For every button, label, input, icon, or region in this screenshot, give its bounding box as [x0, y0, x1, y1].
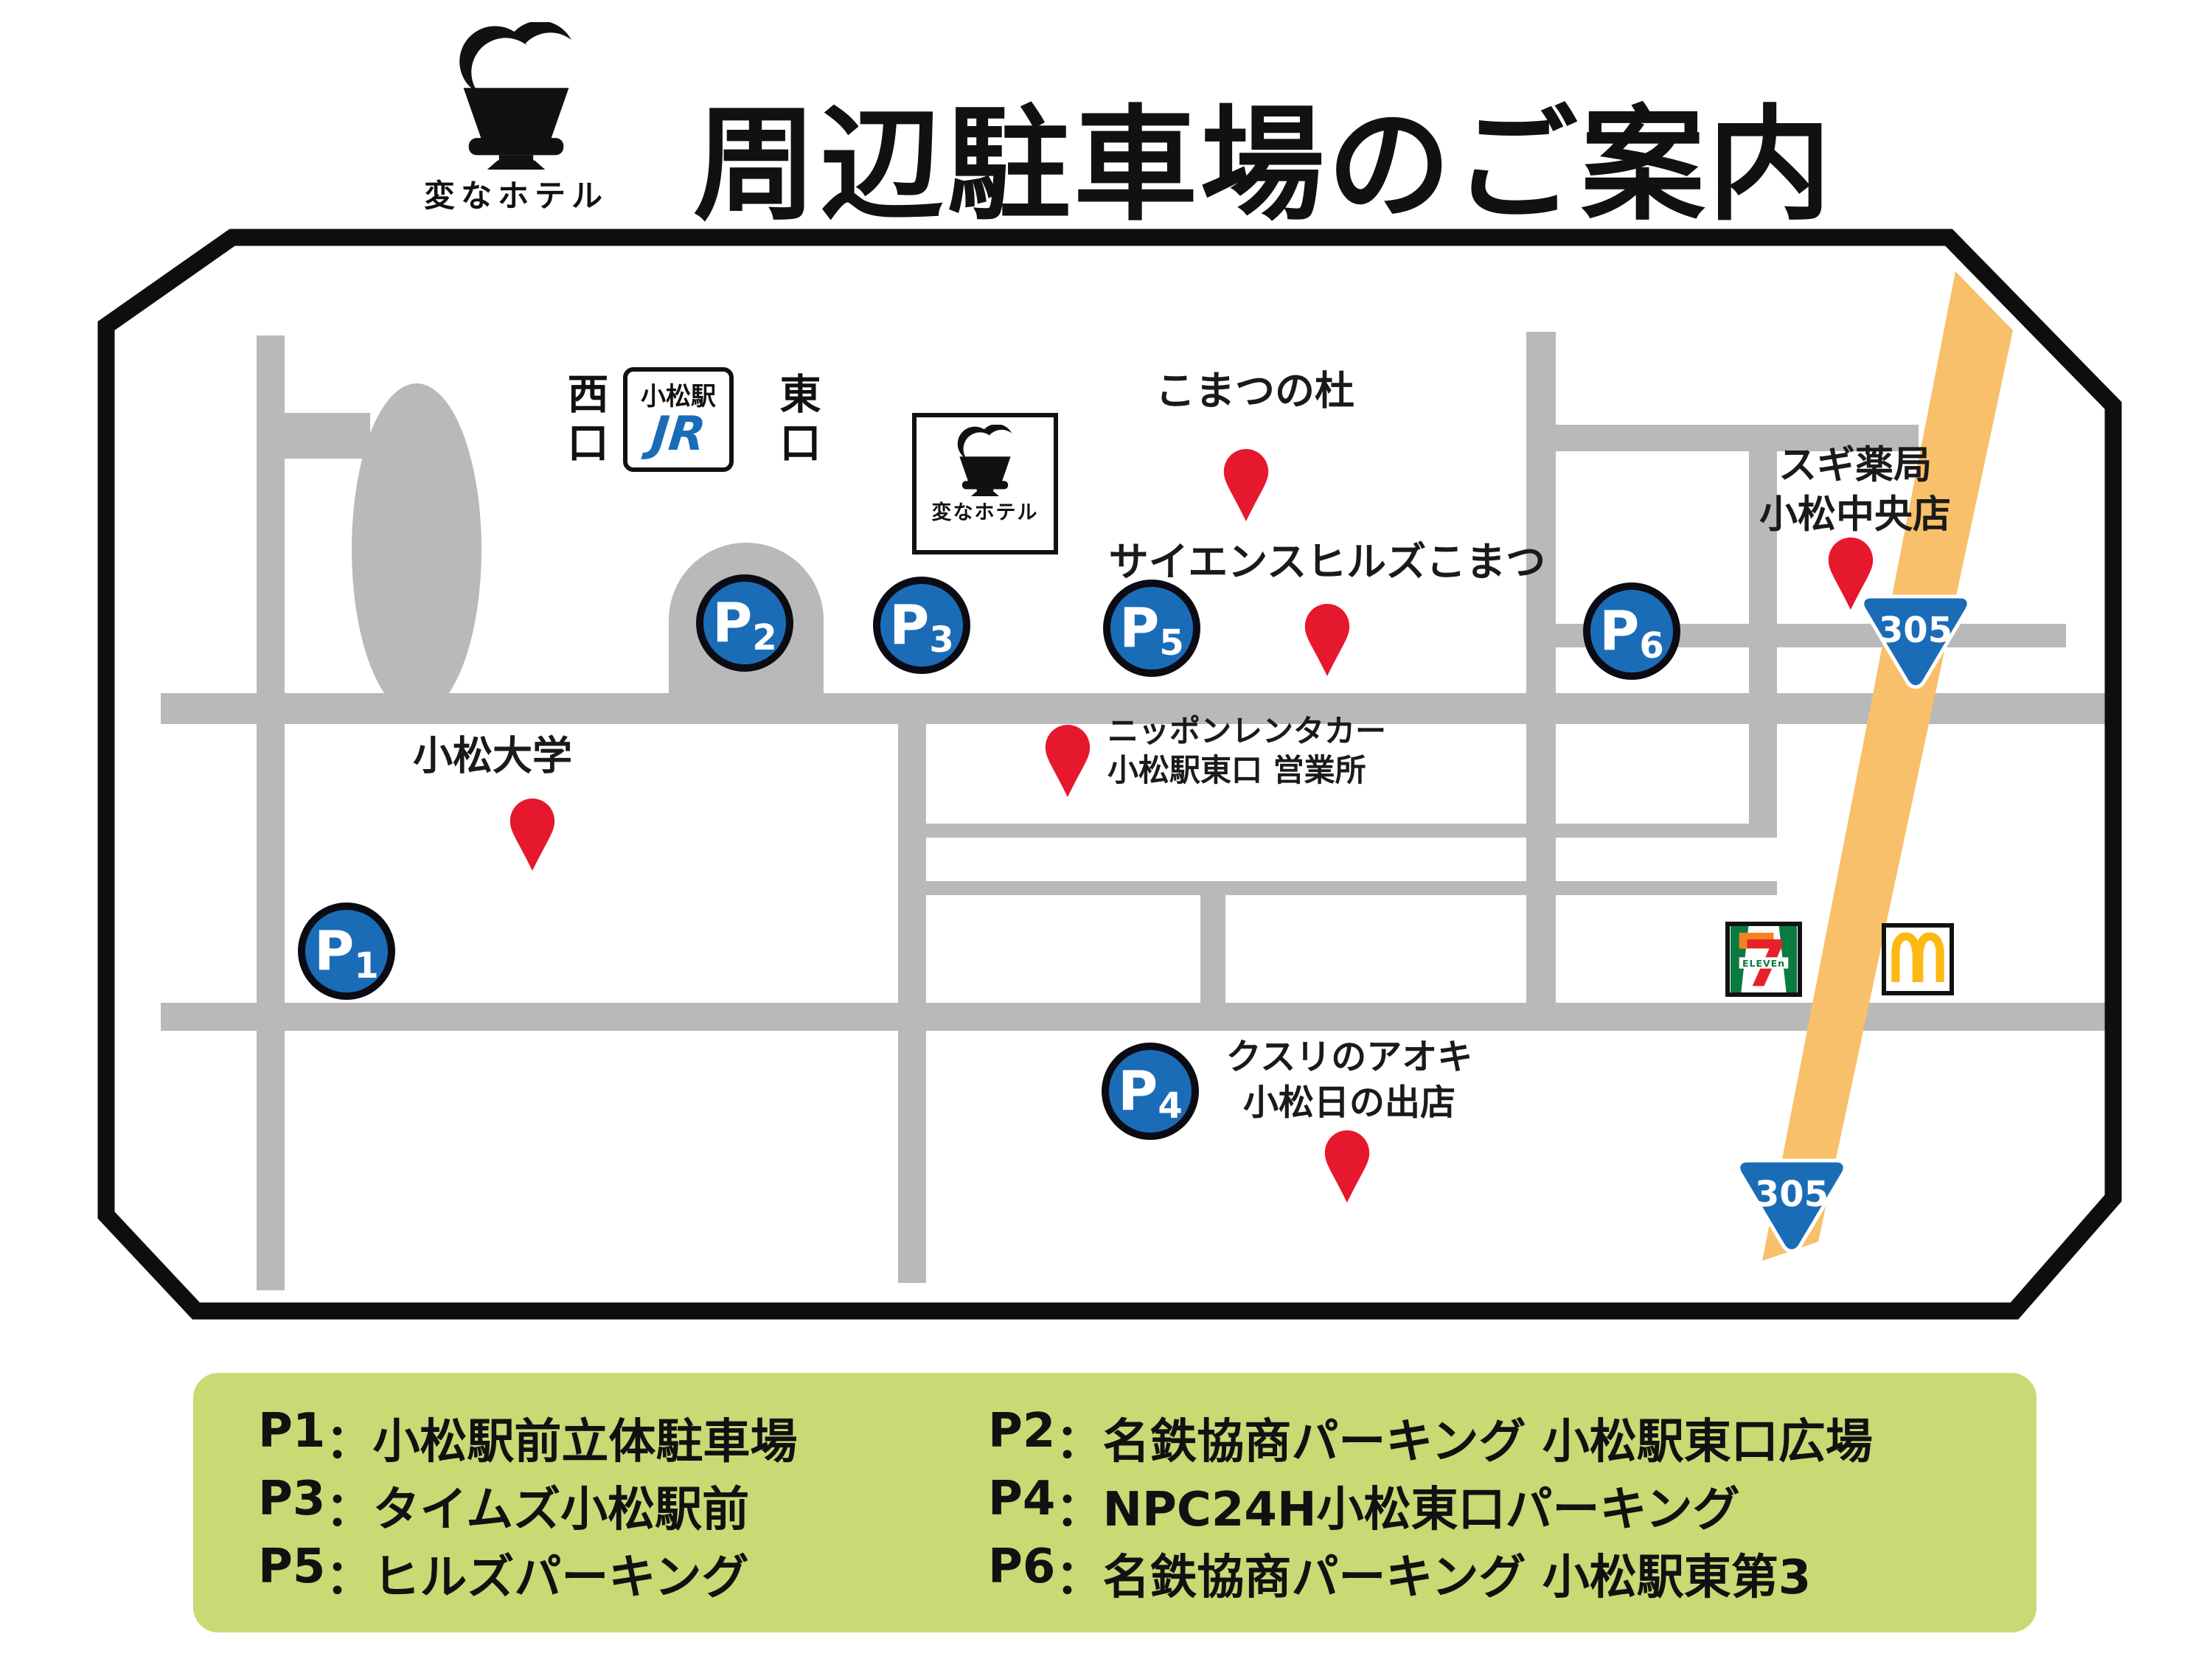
east-exit-label: 東口: [767, 372, 827, 470]
hotel-brand-logo: 変なホテル: [398, 22, 634, 216]
page-title: 周辺駐車場のご案内: [693, 65, 1834, 244]
parking-badge-p6: P6: [1583, 582, 1680, 680]
road-lower-horizontal: [161, 1003, 2106, 1031]
route305-road: [1762, 271, 2013, 1261]
legend-item-p1: P1：小松駅前立体駐車場: [258, 1404, 988, 1472]
poi-label-science-hills: サイエンスヒルズこまつ: [1109, 529, 1545, 588]
crown-icon: [435, 22, 597, 170]
hotel-box-label: 変なホテル: [917, 496, 1054, 525]
jr-logo: JR: [625, 411, 732, 458]
parking-badge-p3: P3: [873, 577, 970, 674]
poi-label-sugi-line2: 小松中央店: [1759, 490, 1951, 540]
route-shield-icon-lower: 305: [1736, 1156, 1847, 1255]
map-pin-icon-rentacar: [1043, 723, 1092, 799]
road-block-connector: [1200, 894, 1225, 1012]
parking-badge-p4: P4: [1102, 1043, 1199, 1140]
station-building: [352, 383, 481, 715]
road-station-stub: [280, 413, 370, 459]
route-shield-icon-upper: 305: [1860, 592, 1971, 691]
legend-box: P1：小松駅前立体駐車場 P2：名鉄協商パーキング 小松駅東口広場 P3：タイム…: [193, 1373, 2037, 1632]
poi-label-komatsu-no-mori: こまつの杜: [1155, 358, 1354, 417]
poi-label-rentacar-line1: ニッポンレンタカー: [1107, 712, 1386, 751]
legend-item-p5: P5：ヒルズパーキング: [258, 1540, 988, 1607]
west-exit-label: 西口: [554, 372, 614, 470]
road-p3-vertical: [898, 723, 926, 1283]
legend-item-p3: P3：タイムズ小松駅前: [258, 1472, 988, 1540]
crown-icon: [947, 425, 1023, 496]
jr-station-box: 小松駅 JR: [623, 367, 734, 472]
poi-label-rentacar-line2: 小松駅東口 営業所: [1107, 751, 1386, 790]
parking-badge-p1: P1: [298, 902, 395, 1000]
hotel-location-box: 変なホテル: [912, 413, 1058, 554]
svg-text:305: 305: [1879, 610, 1952, 651]
poi-label-aoki-line1: クスリのアオキ: [1226, 1034, 1473, 1080]
road-block-upper: [924, 824, 1777, 838]
parking-badge-p5: P5: [1103, 580, 1200, 677]
legend-item-p2: P2：名鉄協商パーキング 小松駅東口広場: [988, 1404, 2014, 1472]
poi-label-rentacar: ニッポンレンタカー 小松駅東口 営業所: [1107, 712, 1386, 790]
poi-label-sugi-pharmacy: スギ薬局 小松中央店: [1759, 441, 1951, 539]
mcdonalds-icon: [1882, 923, 1954, 995]
poi-label-aoki: クスリのアオキ 小松日の出店: [1226, 1034, 1473, 1127]
hotel-brand-label: 変なホテル: [398, 171, 634, 216]
legend-item-p4: P4：NPC24H小松東口パーキング: [988, 1472, 2014, 1540]
poi-label-aoki-line2: 小松日の出店: [1226, 1080, 1473, 1126]
map-pin-icon-komatsu-university: [508, 796, 557, 873]
map-pin-icon-science-hills: [1303, 602, 1352, 678]
parking-badge-p2: P2: [696, 574, 793, 672]
svg-text:305: 305: [1755, 1174, 1829, 1215]
seven-eleven-icon: 7 ELEVEn: [1725, 922, 1802, 997]
svg-text:ELEVEn: ELEVEn: [1742, 958, 1785, 969]
parking-guide-page: 変なホテル 周辺駐車場のご案内 西口 小松駅 JR 東口 変なホテル こまつ: [0, 0, 2212, 1659]
poi-label-sugi-line1: スギ薬局: [1759, 441, 1951, 490]
poi-label-komatsu-university: 小松大学: [413, 723, 572, 782]
map-pin-icon-komatsu-no-mori: [1222, 447, 1270, 524]
road-block-lower: [924, 881, 1777, 895]
map-pin-icon-aoki: [1323, 1128, 1371, 1205]
road-left-vertical: [257, 335, 285, 1290]
legend-item-p6: P6：名鉄協商パーキング 小松駅東第3: [988, 1540, 2014, 1607]
